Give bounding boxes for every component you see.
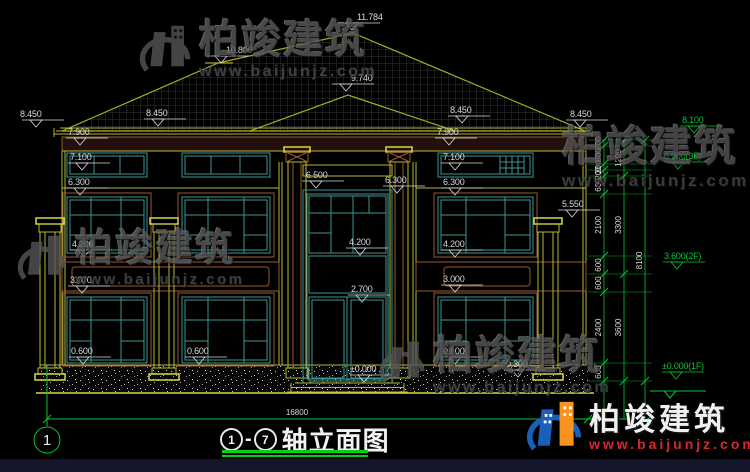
level-label: 8.450 <box>146 108 168 118</box>
level-label: 8.450 <box>570 109 592 119</box>
level-label: 9.740 <box>351 73 373 83</box>
level-label: 0.600 <box>443 346 465 356</box>
wing-pilasters <box>35 218 563 380</box>
level-triangle <box>74 188 86 195</box>
total-width-dimension: 16800 <box>286 408 309 417</box>
elevation-drawing: 16800 1 11.78410.8009.7408.4508.4508.450… <box>0 0 750 472</box>
dimension-value: 600 <box>594 148 603 162</box>
dimension-value: 1200 <box>614 149 623 167</box>
level-label: 6.300 <box>68 177 90 187</box>
level-triangle <box>346 23 358 30</box>
level-label: 4.200 <box>443 239 465 249</box>
axis-bubble-label: 1 <box>43 432 51 449</box>
level-label: 3.000 <box>70 275 92 285</box>
axis-end-bubble: 7 <box>254 428 277 451</box>
level-triangle <box>449 188 461 195</box>
level-label: 4.200 <box>72 239 94 249</box>
level-label: 5.550 <box>562 199 584 209</box>
hip-roof <box>62 33 585 131</box>
level-label: 7.900 <box>437 127 459 137</box>
level-label: 0.600 <box>187 346 209 356</box>
level-label: 11.784 <box>357 12 383 22</box>
title-underline <box>222 450 368 453</box>
level-label: 6.300 <box>385 175 407 185</box>
level-triangle <box>391 186 403 193</box>
dimension-value: 600 <box>594 365 603 379</box>
axis-range-dash: - <box>245 428 252 451</box>
spandrel-bands <box>62 262 586 291</box>
cad-elevation-screenshot: 16800 1 11.78410.8009.7408.4508.4508.450… <box>0 0 750 472</box>
dimension-value: 3600 <box>614 318 623 336</box>
dimension-value: 200 <box>594 166 603 180</box>
dimension-value: 8100 <box>635 251 644 269</box>
level-label: 6.500 <box>306 170 328 180</box>
level-label: 6.900(3F) <box>664 151 701 161</box>
level-triangle <box>574 120 586 127</box>
level-label: 3.000 <box>443 274 465 284</box>
level-label: 7.100 <box>70 152 92 162</box>
level-label: 10.800 <box>226 45 253 55</box>
level-triangle <box>671 262 683 269</box>
dimension-value: 600 <box>594 276 603 290</box>
dimension-value: 3300 <box>614 216 623 234</box>
dimension-value: 200 <box>594 136 603 150</box>
dimension-value: 600 <box>594 258 603 272</box>
level-triangle <box>354 248 366 255</box>
ground-level-marker <box>650 391 706 398</box>
level-triangle <box>688 126 700 133</box>
level-label: 2.700 <box>351 284 373 294</box>
level-label: 6.300 <box>443 177 465 187</box>
title-underline-thin <box>222 455 368 457</box>
dimension-value: 600 <box>594 178 603 192</box>
level-triangle <box>310 181 322 188</box>
entrance-door <box>303 190 392 383</box>
dimension-value: 2400 <box>594 318 603 336</box>
dimension-value: 2100 <box>594 216 603 234</box>
level-label: 7.900 <box>68 127 90 137</box>
bottom-navy-band <box>0 459 750 472</box>
level-label: 7.100 <box>443 152 465 162</box>
level-label: ±0.000 <box>350 364 376 374</box>
level-label: 8.450 <box>450 105 472 115</box>
level-label: 8.100 <box>682 115 704 125</box>
level-label: 4.200 <box>349 237 371 247</box>
second-floor-windows <box>63 193 537 257</box>
level-label: ±0.000(1F) <box>662 361 704 371</box>
eave-cornice <box>54 128 592 151</box>
level-label: 8.450 <box>20 109 42 119</box>
level-triangle <box>76 163 88 170</box>
level-triangle <box>76 286 88 293</box>
level-triangle <box>30 120 42 127</box>
level-triangle <box>670 372 682 379</box>
level-triangle <box>356 295 368 302</box>
level-triangle <box>449 163 461 170</box>
level-triangle <box>672 162 684 169</box>
level-triangle <box>566 210 578 217</box>
level-label: 3.600(2F) <box>664 251 701 261</box>
level-label: 0.300 <box>506 359 528 369</box>
axis-start-bubble: 1 <box>220 428 243 451</box>
level-label: 0.600 <box>71 346 93 356</box>
ground-floor-windows <box>63 293 537 366</box>
